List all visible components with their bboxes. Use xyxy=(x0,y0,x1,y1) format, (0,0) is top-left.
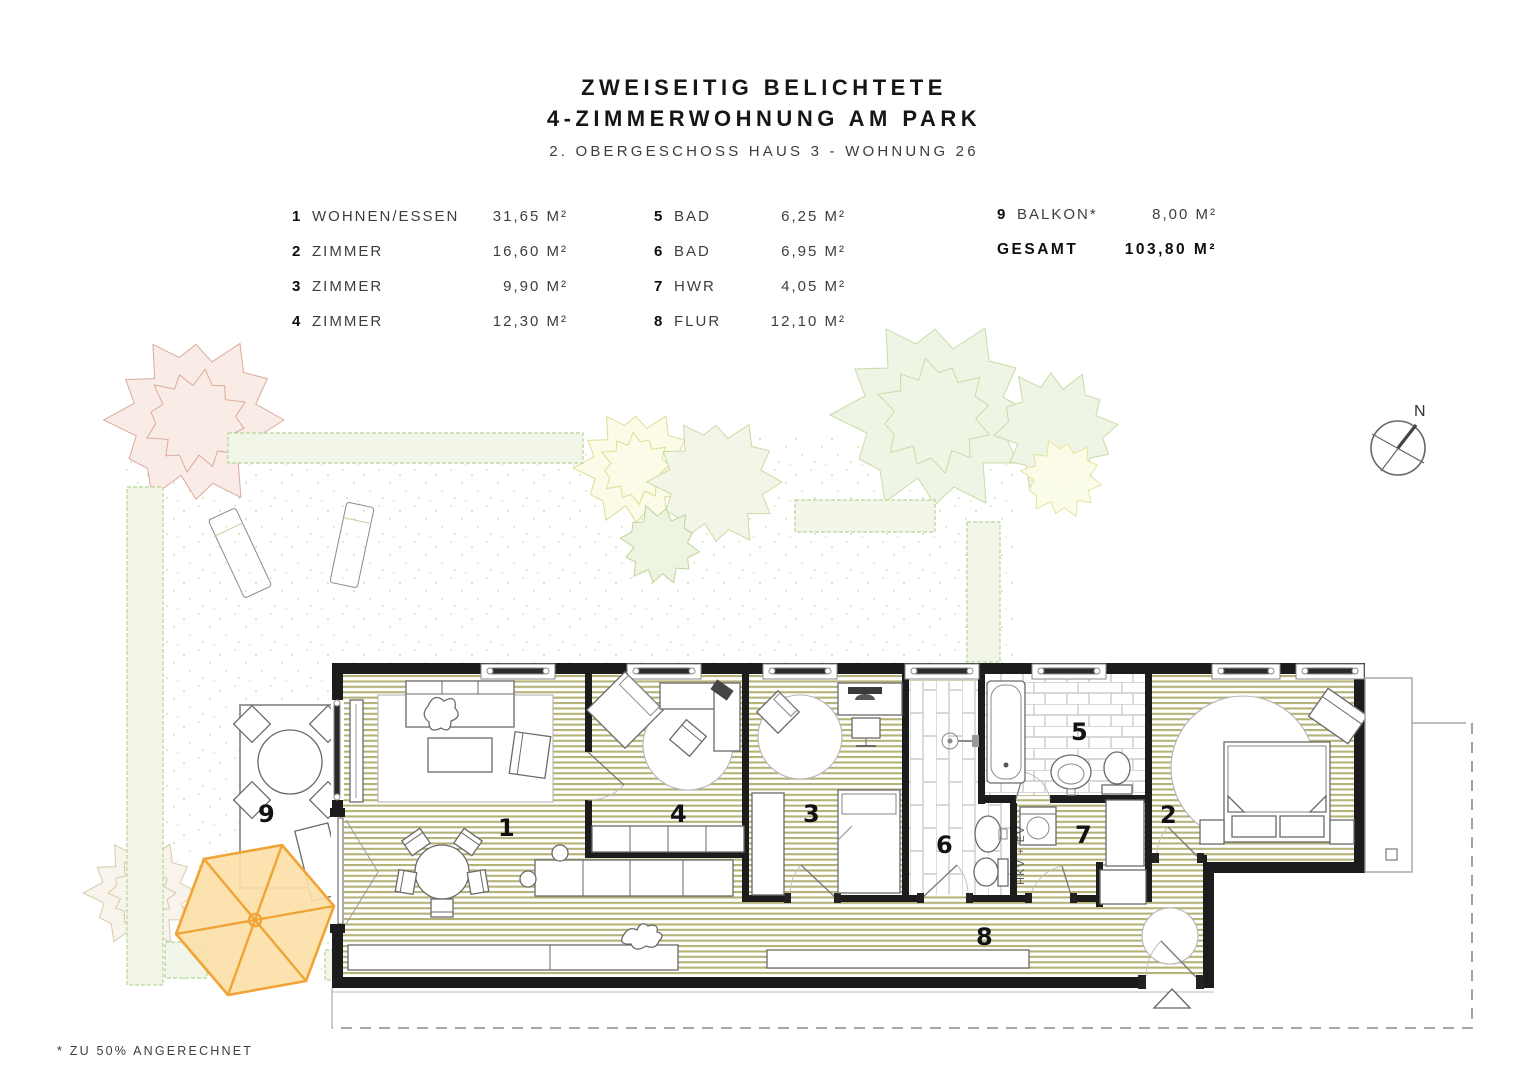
legend-row: 7 HWR 4,05 M² xyxy=(654,278,846,298)
dining-table xyxy=(415,845,469,899)
hedge-right xyxy=(967,522,1000,662)
window xyxy=(1212,664,1280,679)
room-label-3: 3 xyxy=(803,800,820,828)
toilet-tank xyxy=(998,859,1008,886)
bed-double xyxy=(1224,742,1330,842)
dining-chair xyxy=(431,899,453,917)
room-area: 4,05 M² xyxy=(781,278,846,295)
toilet xyxy=(1104,752,1130,784)
toilet xyxy=(974,858,998,886)
legend-total-row: GESAMT 103,80 M² xyxy=(997,241,1217,259)
floorplan-page: ZWEISEITIG BELICHTETE 4-ZIMMERWOHNUNG AM… xyxy=(0,0,1528,1080)
coffee-table xyxy=(428,738,492,772)
legend-row: 9 BALKON* 8,00 M² xyxy=(997,206,1217,226)
room-number: 7 xyxy=(654,278,674,295)
window-left-wall xyxy=(331,700,344,800)
room-area: 12,30 M² xyxy=(493,313,568,330)
compass-north-label: N xyxy=(1414,403,1426,420)
hall-sideboard xyxy=(767,950,1029,968)
legend-row: 2 ZIMMER 16,60 M² xyxy=(292,243,568,263)
apartment: HKV + EV xyxy=(330,663,1367,989)
utility-shaft-label: HKV + EV xyxy=(1015,825,1027,885)
legend-row: 4 ZIMMER 12,30 M² xyxy=(292,313,568,333)
legend-row: 3 ZIMMER 9,90 M² xyxy=(292,278,568,298)
legend-column-1: 1 WOHNEN/ESSEN 31,65 M² 2 ZIMMER 16,60 M… xyxy=(292,208,568,348)
bathtub xyxy=(987,681,1025,783)
cabinet xyxy=(1106,800,1144,866)
legend-column-3: 9 BALKON* 8,00 M² GESAMT 103,80 M² xyxy=(997,206,1217,259)
page-title-line1: ZWEISEITIG BELICHTETE xyxy=(0,72,1528,103)
room-number: 9 xyxy=(997,206,1017,223)
hedge-top xyxy=(228,433,583,463)
toilet-tank xyxy=(1102,785,1132,794)
room-name: BAD xyxy=(674,208,711,225)
room-number: 1 xyxy=(292,208,312,225)
room-number: 6 xyxy=(654,243,674,260)
window xyxy=(763,664,837,679)
hall-sideboard xyxy=(348,945,678,970)
neighbor-balcony xyxy=(1365,678,1412,872)
room-name: FLUR xyxy=(674,313,721,330)
window xyxy=(627,664,701,679)
monitor xyxy=(848,687,882,694)
total-area: 103,80 M² xyxy=(1125,241,1217,259)
legend-column-2: 5 BAD 6,25 M² 6 BAD 6,95 M² 7 HWR 4,05 M… xyxy=(654,208,846,348)
window xyxy=(1296,664,1364,679)
footnote: * ZU 50% ANGERECHNET xyxy=(57,1044,253,1058)
room-name: BAD xyxy=(674,243,711,260)
hedge-left xyxy=(127,487,163,985)
nightstand xyxy=(1330,820,1354,844)
dining-chair xyxy=(467,870,489,895)
room-name: ZIMMER xyxy=(312,278,383,295)
armchair xyxy=(509,732,550,779)
room-label-5: 5 xyxy=(1071,718,1088,746)
balcony-table xyxy=(258,730,322,794)
room-name: ZIMMER xyxy=(312,313,383,330)
room-area: 6,95 M² xyxy=(781,243,846,260)
room-label-7: 7 xyxy=(1075,821,1092,849)
room-label-2: 2 xyxy=(1160,801,1177,829)
legend-row: 8 FLUR 12,10 M² xyxy=(654,313,846,333)
room-area: 12,10 M² xyxy=(771,313,846,330)
room-number: 3 xyxy=(292,278,312,295)
window xyxy=(905,664,979,679)
page-subtitle: 2. OBERGESCHOSS HAUS 3 - WOHNUNG 26 xyxy=(0,143,1528,160)
column-marker xyxy=(1386,849,1397,860)
window xyxy=(481,664,555,679)
room-label-4: 4 xyxy=(670,800,687,828)
legend-row: 5 BAD 6,25 M² xyxy=(654,208,846,228)
room-area: 8,00 M² xyxy=(1152,206,1217,223)
room-number: 2 xyxy=(292,243,312,260)
bar-stool xyxy=(520,871,536,887)
entry-closet xyxy=(1100,870,1146,904)
total-label: GESAMT xyxy=(997,241,1078,259)
wardrobe xyxy=(752,793,784,895)
window xyxy=(1032,664,1106,679)
room-name: ZIMMER xyxy=(312,243,383,260)
legend-row: 6 BAD 6,95 M² xyxy=(654,243,846,263)
room-area: 6,25 M² xyxy=(781,208,846,225)
room-number: 4 xyxy=(292,313,312,330)
dining-chair xyxy=(395,870,417,895)
bar-stool xyxy=(552,845,568,861)
room-area: 16,60 M² xyxy=(493,243,568,260)
compass-icon: N xyxy=(1371,403,1426,475)
room-label-1: 1 xyxy=(498,814,515,842)
room-area: 31,65 M² xyxy=(493,208,568,225)
room-name: BALKON* xyxy=(1017,206,1098,223)
room-label-6: 6 xyxy=(936,831,953,859)
hedge-mid xyxy=(795,500,935,532)
room-label-9: 9 xyxy=(258,800,275,828)
legend-row: 1 WOHNEN/ESSEN 31,65 M² xyxy=(292,208,568,228)
room-number: 8 xyxy=(654,313,674,330)
floor-plan-drawing: 9 xyxy=(0,0,1528,1080)
nightstand xyxy=(1200,820,1224,844)
page-title-line2: 4-ZIMMERWOHNUNG AM PARK xyxy=(0,103,1528,134)
header: ZWEISEITIG BELICHTETE 4-ZIMMERWOHNUNG AM… xyxy=(0,72,1528,160)
sofa xyxy=(406,681,514,727)
room-number: 5 xyxy=(654,208,674,225)
room-name: WOHNEN/ESSEN xyxy=(312,208,459,225)
room-label-8: 8 xyxy=(976,923,993,951)
room-area: 9,90 M² xyxy=(503,278,568,295)
washbasin xyxy=(975,816,1001,852)
bed-single xyxy=(838,790,900,893)
room-name: HWR xyxy=(674,278,716,295)
